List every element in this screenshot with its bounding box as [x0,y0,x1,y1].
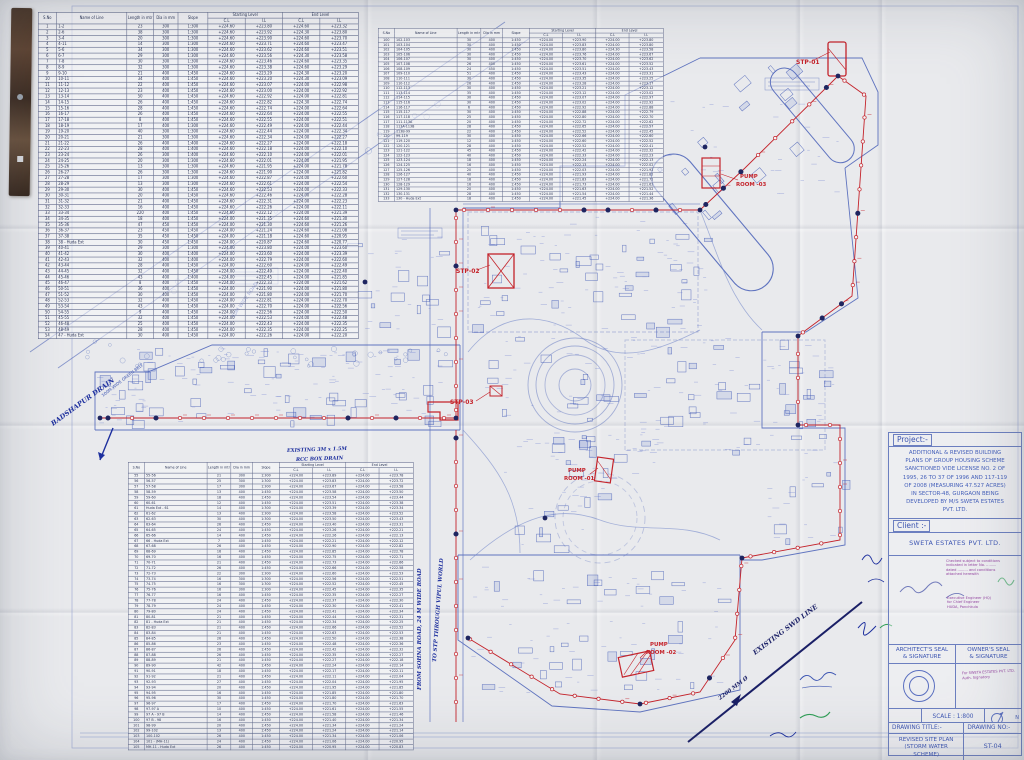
column-header: Length in mtr [207,462,231,473]
column-header: Name of Line [56,12,126,24]
column-header: S.No [128,462,144,473]
drawing-number: ST-04 [963,734,1021,760]
column-header: Name of Line [144,462,207,473]
building-cluster [552,441,650,477]
pipe-schedule-1: S.NoName of LineLength in mtrDia in mmSl… [38,12,359,339]
pipe-schedule-3: S.NoName of LineLength in mtrDia in mmSl… [128,462,413,750]
drawing-title-label: DRAWING TITLE:- [889,723,963,733]
plan-label: ROOM -03 [736,182,767,188]
huda-stamp-text: Checked subject to conditionsindicated i… [946,559,1018,577]
plan-label: STP-03 [450,399,474,406]
client-label: Client :- [889,519,1021,533]
plan-label: 2200 MM Ø [716,675,750,703]
column-header: S.No [38,12,56,24]
seals-section: ARCHITECT'S SEAL& SIGNATURE OWNER'S SEAL… [889,645,1021,709]
drawing-no-label: DRAWING NO:- [963,723,1021,733]
client-name: SWETA ESTATES PVT. LTD. [889,533,1021,556]
plan-label: PUMP [650,642,668,648]
north-arrow-icon: N [984,709,1021,722]
building-cluster [473,226,713,337]
column-header: S.No [378,28,394,38]
owner-seal-label: OWNER'S SEAL& SIGNATURE [955,645,1021,664]
plan-label: FROM SOHNA ROAD, 24 M WIDE ROAD [417,568,423,691]
engineer-stamp-text: Executive Engineer (HQ)for Chief Enginee… [947,596,1011,610]
table-row: 5447 - Huda Ext304001:450+224.00+222.26+… [38,333,358,339]
plan-label: ROOM -02 [646,650,677,656]
title-block: Project:- ADDITIONAL & REVISED BUILDINGP… [888,432,1022,756]
column-header: Slope [178,12,208,24]
project-label: Project:- [889,433,1021,447]
column-header: Length in mtr [457,28,481,38]
scale-value: SCALE : 1:800 [921,709,984,722]
building-cluster [119,372,441,428]
column-header: Name of Line [394,28,457,38]
plan-label: BADSHAPUR DRAIN [49,376,117,429]
building-cluster [488,338,619,422]
owner-stamp-text: For SWETA ESTATES PVT. LTD.Auth. Signato… [962,668,1016,680]
architect-seal-cell [889,664,955,708]
column-header: Slope [503,28,530,38]
plan-label: PUMP [568,468,586,474]
building-cluster [515,436,612,553]
plan-label: EXISTING 3M x 1.5M [286,446,348,454]
building-cluster [634,340,815,455]
plan-label: STP-01 [796,59,820,66]
plan-label: PUMP [740,174,758,180]
building-cluster [482,571,731,690]
pipe-schedule-2: S.NoName of LineLength in mtrDia in mmSl… [378,28,663,202]
architect-seal-label: ARCHITECT'S SEAL& SIGNATURE [889,645,955,664]
table-row: 105MH-11 - Huda Ext264001:450+224.00+220… [128,745,413,750]
column-header: Dia in mm [231,462,253,473]
building-cluster [348,244,451,338]
building-cluster [140,348,453,379]
column-header: Length in mtr [127,12,154,24]
plan-label: TO STP THROUGH VIPUL WORLD [432,558,445,662]
plan-label: STP-02 [456,268,480,275]
project-description: ADDITIONAL & REVISED BUILDINGPLANS OF GR… [889,447,1021,519]
plan-label: ROOM -01 [564,476,595,482]
drawing-title: REVISED SITE PLAN (STORM WATER SCHEME) [889,734,963,760]
column-header: Dia in mm [481,28,503,38]
column-header: Slope [253,462,280,473]
owner-seal-cell: For SWETA ESTATES PVT. LTD.Auth. Signato… [955,664,1021,708]
column-header: Dia in mm [153,12,178,24]
title-grid: SCALE : 1:800 N DRAWING TITLE:- DRAWING … [889,709,1021,760]
table-row: 133130 - Huda Ext184001:450+224.00+221.4… [378,197,663,202]
scanned-drawing-sheet: STP-01STP-02STP-03PUMPROOM -03PUMPROOM -… [0,0,1024,760]
architect-seal-icon [903,670,935,702]
approval-stamp-area: Checked subject to conditionsindicated i… [889,556,1021,645]
plan-label: EXISTING SWD LINE [751,602,820,657]
